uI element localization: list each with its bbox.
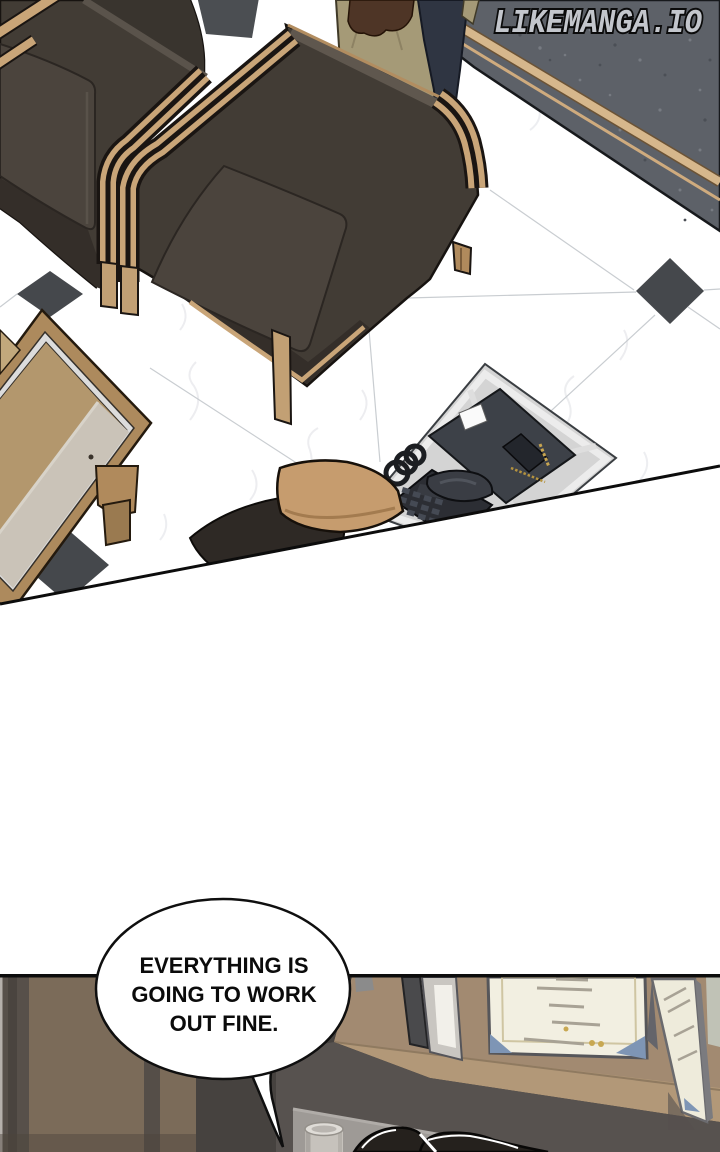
svg-text:OUT FINE.: OUT FINE. xyxy=(170,1011,279,1036)
svg-text:EVERYTHING IS: EVERYTHING IS xyxy=(139,953,308,978)
svg-text:GOING TO WORK: GOING TO WORK xyxy=(131,982,316,1007)
svg-text:LIKEMANGA.IO: LIKEMANGA.IO xyxy=(494,5,702,42)
